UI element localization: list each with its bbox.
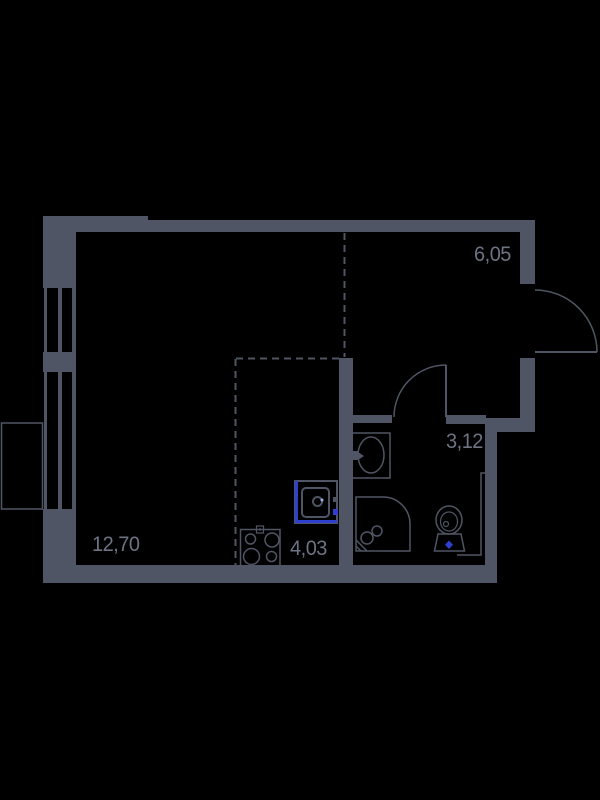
window-line bbox=[72, 372, 76, 509]
bathroom-sink-icon bbox=[352, 433, 391, 478]
shower-icon bbox=[356, 497, 410, 551]
wall-right-upper bbox=[520, 220, 535, 284]
stove-burner bbox=[267, 552, 277, 562]
window-line bbox=[44, 372, 47, 509]
toilet-valve-diamond bbox=[445, 541, 453, 550]
sink-faucet-spout bbox=[358, 452, 364, 460]
stove-burner bbox=[244, 549, 260, 565]
window-line bbox=[72, 288, 76, 352]
toilet-bowl-inner bbox=[441, 512, 458, 531]
room-area-living-room: 12,70 bbox=[92, 533, 140, 557]
stove-burner bbox=[246, 534, 256, 544]
wall-bathroom-partition bbox=[339, 358, 353, 565]
sink-faucet bbox=[352, 451, 358, 460]
wall-top bbox=[148, 220, 535, 232]
window-upper bbox=[44, 288, 76, 352]
toilet-flush-mark bbox=[444, 522, 449, 527]
kitchen-sink-icon bbox=[295, 481, 338, 523]
toilet-bowl-outer bbox=[436, 506, 462, 534]
stove-control-dot bbox=[259, 528, 261, 530]
shower-drain-outer bbox=[361, 532, 373, 544]
kitchen-sink-drain bbox=[313, 497, 322, 506]
window-sill-box bbox=[2, 423, 43, 509]
kitchen-sink-basin bbox=[302, 488, 329, 517]
window-line bbox=[58, 372, 62, 509]
entrance-door bbox=[535, 290, 597, 352]
kitchen-faucet-mark-blue bbox=[333, 509, 338, 515]
floor-plan-drawing bbox=[0, 0, 600, 800]
kitchen-sink-drain-dot bbox=[321, 499, 324, 502]
entrance-door-swing-arc bbox=[535, 290, 597, 352]
kitchen-faucet-mark bbox=[333, 497, 338, 502]
window-line bbox=[44, 288, 47, 352]
floor-plan: 12,70 6,05 3,12 4,03 bbox=[0, 0, 600, 800]
wall-bathroom-top-right bbox=[446, 415, 486, 424]
wall-right-mid bbox=[520, 358, 535, 432]
bathroom-door bbox=[394, 365, 446, 417]
room-area-hallway: 6,05 bbox=[474, 243, 511, 267]
room-area-kitchen: 4,03 bbox=[290, 537, 327, 561]
window-line bbox=[58, 288, 62, 352]
window-lower bbox=[44, 372, 76, 509]
bathroom-door-swing-arc bbox=[394, 365, 446, 417]
wall-left-upper-pier bbox=[43, 216, 76, 288]
shower-drain bbox=[372, 526, 382, 536]
walls bbox=[43, 216, 535, 583]
toilet-icon bbox=[435, 506, 465, 551]
wall-bottom bbox=[43, 565, 497, 583]
wall-left-mid-pier bbox=[43, 352, 76, 372]
wall-bathroom-right bbox=[485, 418, 497, 582]
stove-burner bbox=[265, 533, 279, 547]
stove-icon bbox=[241, 526, 281, 565]
room-area-bathroom: 3,12 bbox=[446, 430, 483, 454]
wall-bathroom-top-left bbox=[339, 415, 392, 423]
